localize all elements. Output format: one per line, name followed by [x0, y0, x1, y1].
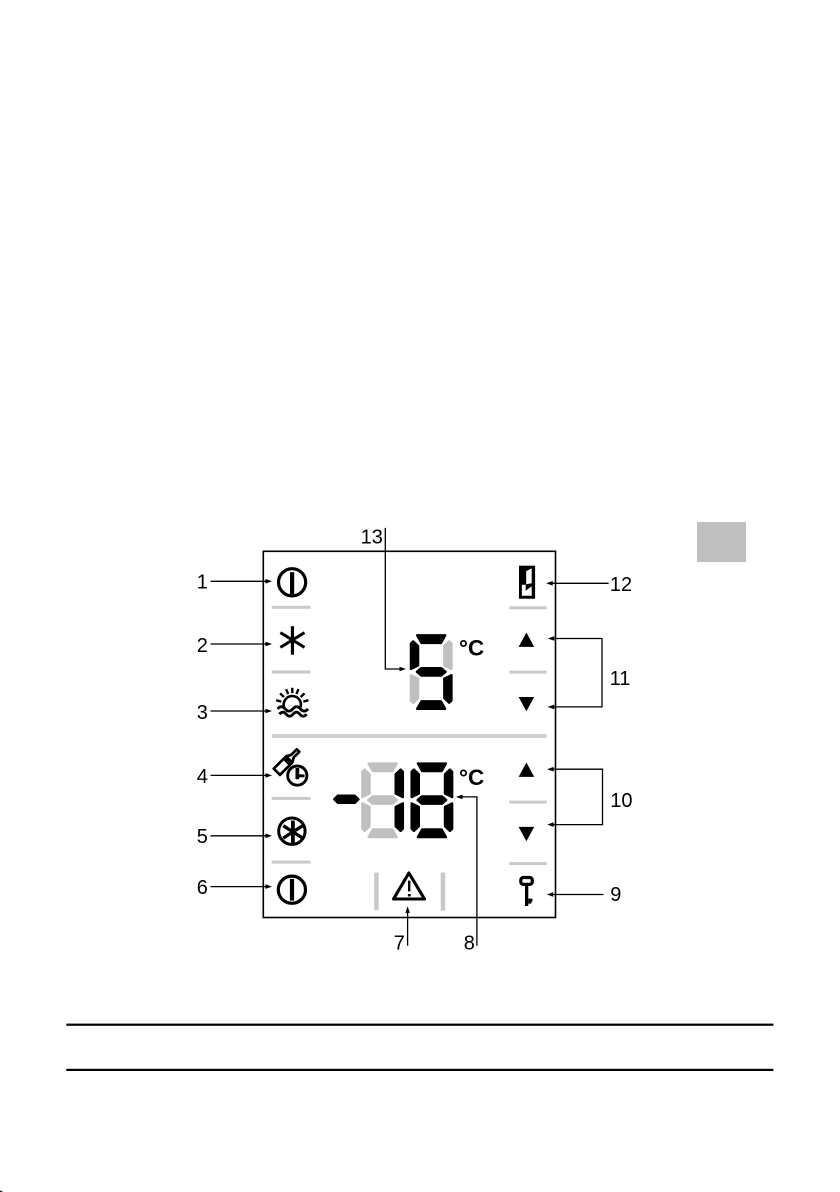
svg-text:3: 3	[197, 702, 208, 724]
svg-text:11: 11	[610, 668, 631, 690]
svg-text:1: 1	[197, 572, 208, 594]
svg-text:°C: °C	[459, 765, 484, 790]
svg-text:5: 5	[197, 826, 208, 848]
svg-text:°C: °C	[459, 636, 484, 661]
svg-text:6: 6	[197, 877, 208, 899]
svg-text:13: 13	[361, 526, 383, 548]
svg-text:8: 8	[464, 932, 475, 954]
svg-text:12: 12	[610, 574, 632, 596]
svg-text:2: 2	[197, 635, 208, 657]
svg-text:9: 9	[610, 884, 621, 906]
svg-text:10: 10	[610, 790, 632, 812]
svg-text:7: 7	[394, 932, 405, 954]
svg-text:4: 4	[197, 766, 208, 788]
